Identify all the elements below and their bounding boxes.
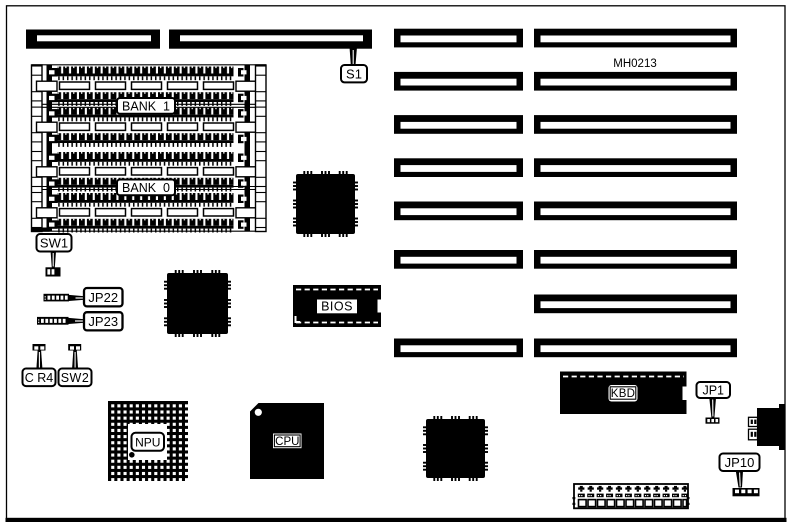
svg-text:C R4: C R4	[25, 371, 54, 385]
svg-text:BANK 1: BANK 1	[122, 99, 170, 113]
svg-text:SW1: SW1	[40, 235, 68, 250]
svg-text:CPU: CPU	[275, 436, 299, 448]
svg-text:JP10: JP10	[725, 455, 755, 470]
svg-text:KBD: KBD	[611, 388, 636, 400]
svg-text:SW2: SW2	[61, 371, 90, 385]
svg-text:JP22: JP22	[88, 290, 118, 305]
svg-text:JP23: JP23	[88, 314, 118, 329]
svg-text:S1: S1	[346, 66, 362, 81]
svg-text:BANK 0: BANK 0	[122, 181, 170, 195]
svg-text:BIOS: BIOS	[321, 300, 353, 314]
svg-text:JP1: JP1	[702, 384, 724, 398]
svg-text:NPU: NPU	[135, 435, 160, 449]
svg-text:MH0213: MH0213	[613, 58, 656, 70]
